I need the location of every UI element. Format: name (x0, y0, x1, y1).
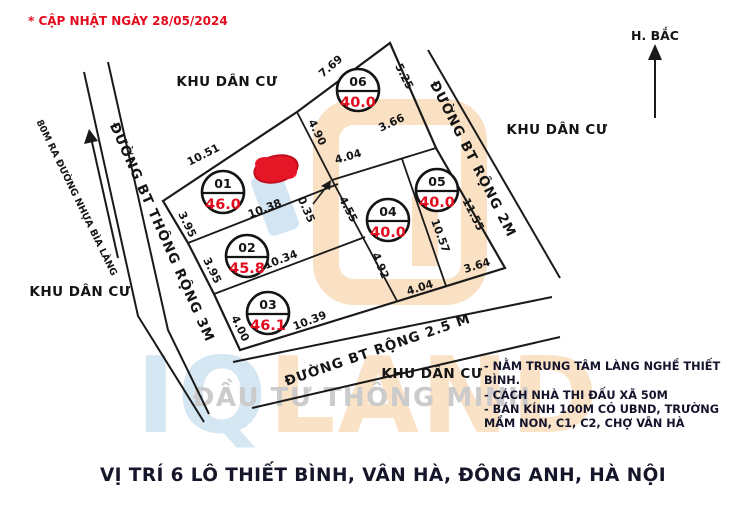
access-road-note: 80M RA ĐƯỜNG NHỰA BÌA LÀNG (34, 118, 120, 278)
area-label-right: KHU DÂN CƯ (506, 121, 607, 138)
plot-badge-05: 05 40.0 (416, 169, 458, 211)
diagram-title: VỊ TRÍ 6 LÔ THIẾT BÌNH, VÂN HÀ, ĐÔNG ANH… (100, 462, 666, 486)
red-scribble-blob-left (255, 157, 275, 171)
area-label-left: KHU DÂN CƯ (29, 283, 130, 300)
plot-05-number: 05 (428, 174, 445, 189)
note-line-4: - BÁN KÍNH 100M CÓ UBND, TRƯỜNG (484, 403, 719, 416)
dim-4-92: 4.92 (369, 251, 392, 281)
plot-badge-02: 02 45.8 (226, 235, 268, 277)
plot-02-number: 02 (238, 240, 255, 255)
plot-03-number: 03 (259, 297, 276, 312)
plot-04-area: 40.0 (370, 225, 406, 241)
plot-badge-01: 01 46.0 (202, 171, 244, 213)
dim-3-95-plot01: 3.95 (175, 209, 199, 239)
access-arrow-head (84, 129, 98, 144)
area-label-top: KHU DÂN CƯ (176, 73, 277, 90)
dim-4-55: 4.55 (336, 194, 360, 224)
north-arrow-head (648, 44, 662, 60)
note-line-2: BÌNH. (484, 374, 520, 387)
area-label-bottom: KHU DÂN CƯ (381, 365, 482, 382)
plot-badge-03: 03 46.1 (247, 292, 289, 334)
compass-label: H. BẮC (631, 27, 679, 43)
plot-06-area: 40.0 (340, 95, 376, 111)
plot-06-number: 06 (349, 74, 367, 89)
plot-01-number: 01 (214, 176, 231, 191)
update-date: * CẬP NHẬT NGÀY 28/05/2024 (28, 13, 228, 28)
plot-badge-04: 04 40.0 (367, 199, 409, 241)
location-notes: - NẰM TRUNG TÂM LÀNG NGHỀ THIẾT BÌNH. - … (484, 358, 720, 430)
plot-05-area: 40.0 (419, 195, 455, 211)
land-plot-diagram: IQLAND ĐẦU TƯ THÔNG MINH 10.51 7.69 5.25… (0, 0, 730, 517)
note-line-5: MẦM NON, C1, C2, CHỢ VÂN HÀ (484, 416, 685, 430)
plot-04-number: 04 (379, 204, 397, 219)
diagram-canvas: IQLAND ĐẦU TƯ THÔNG MINH 10.51 7.69 5.25… (0, 0, 730, 517)
note-line-3: - CÁCH NHÀ THI ĐẤU XÃ 50M (484, 387, 668, 402)
plot-badge-06: 06 40.0 (337, 69, 379, 111)
plot-03-area: 46.1 (250, 318, 286, 334)
red-scribble-blob-right (279, 165, 297, 179)
plot-02-area: 45.8 (229, 261, 265, 277)
dim-5-25: 5.25 (392, 61, 416, 91)
plot-01-area: 46.0 (205, 197, 241, 213)
note-line-1: - NẰM TRUNG TÂM LÀNG NGHỀ THIẾT (484, 358, 720, 373)
dim-3-95-plot02: 3.95 (200, 255, 224, 285)
